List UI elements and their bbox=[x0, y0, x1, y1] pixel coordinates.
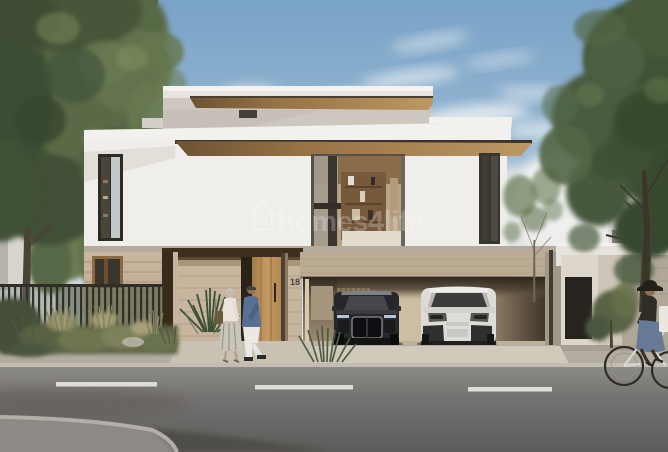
svg-text:homes4life: homes4life bbox=[277, 206, 424, 238]
svg-text:18: 18 bbox=[290, 277, 300, 287]
